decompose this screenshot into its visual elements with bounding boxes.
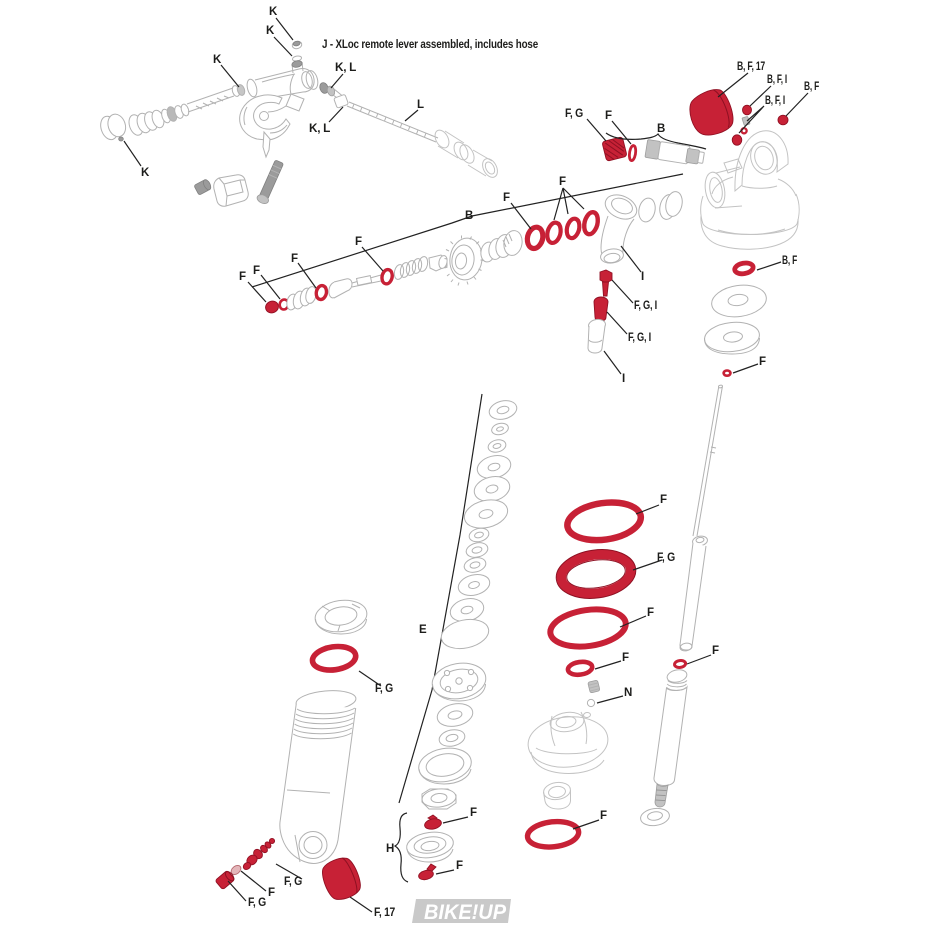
svg-text:F: F [268,887,275,899]
svg-text:J - XLoc remote lever assemble: J - XLoc remote lever assembled, include… [322,39,538,51]
svg-text:B: B [465,210,473,222]
svg-text:F: F [712,645,719,657]
svg-text:F, 17: F, 17 [374,907,395,919]
svg-text:L: L [417,99,424,111]
svg-text:K, L: K, L [335,62,356,74]
svg-text:F: F [470,807,477,819]
svg-text:B, F, 17: B, F, 17 [737,61,765,73]
svg-text:N: N [624,687,632,699]
svg-text:B, F: B, F [782,255,797,267]
svg-text:F: F [600,810,607,822]
svg-text:I: I [641,271,644,283]
svg-text:F: F [622,652,629,664]
svg-text:F: F [239,271,246,283]
svg-text:F: F [759,356,766,368]
svg-text:I: I [622,373,625,385]
svg-text:F, G: F, G [248,897,266,909]
svg-text:F: F [605,110,612,122]
svg-text:K, L: K, L [309,123,330,135]
svg-text:F, G, I: F, G, I [628,332,651,344]
svg-text:F: F [660,494,667,506]
svg-text:F: F [355,236,362,248]
svg-text:F, G, I: F, G, I [634,300,657,312]
svg-text:F: F [503,192,510,204]
svg-text:K: K [269,6,278,18]
svg-text:F: F [456,860,463,872]
svg-text:K: K [266,25,275,37]
svg-text:B: B [657,123,665,135]
svg-text:F: F [291,253,298,265]
svg-text:B, F, I: B, F, I [767,74,787,86]
svg-text:F, G: F, G [565,108,583,120]
svg-text:F, G: F, G [657,552,675,564]
svg-text:K: K [141,167,150,179]
svg-text:F: F [559,176,566,188]
svg-text:K: K [213,54,222,66]
svg-text:H: H [386,843,394,855]
svg-text:F: F [253,265,260,277]
svg-text:BIKE!UP: BIKE!UP [424,901,507,924]
svg-text:B, F, I: B, F, I [765,95,785,107]
svg-text:B, F: B, F [804,81,819,93]
svg-text:E: E [419,624,427,636]
svg-text:F: F [647,607,654,619]
svg-text:F, G: F, G [375,683,393,695]
